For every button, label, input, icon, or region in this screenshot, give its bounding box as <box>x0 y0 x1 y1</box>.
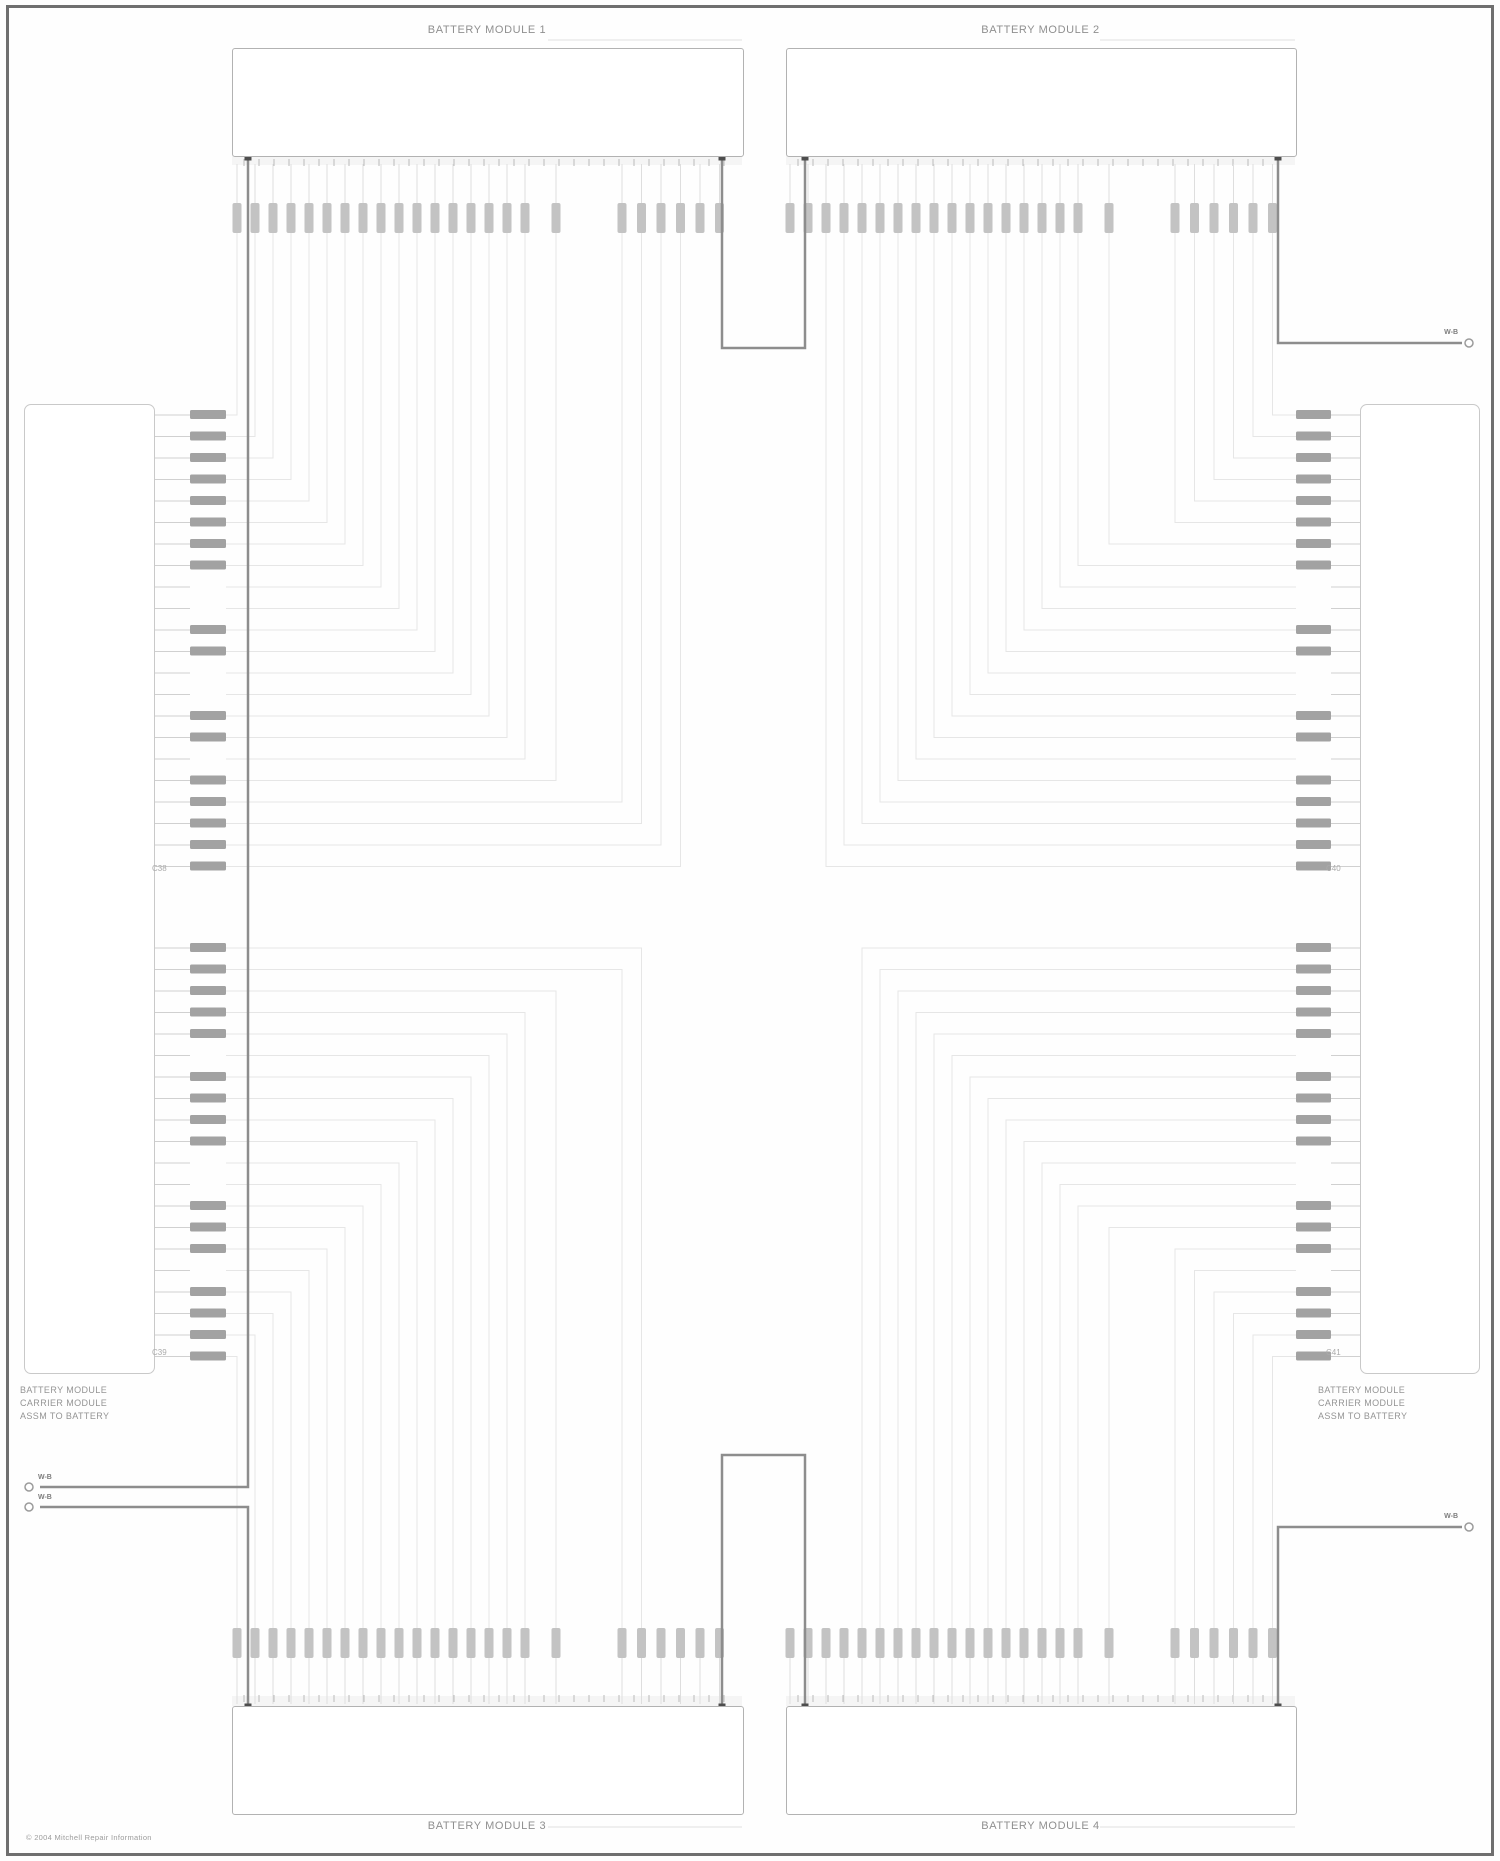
battery-module-box-2 <box>786 48 1297 157</box>
module-label-top-left: BATTERY MODULE 1 <box>232 24 742 36</box>
right-connector-line1: BATTERY MODULE <box>1318 1384 1407 1397</box>
battery-module-box-3 <box>232 1706 744 1815</box>
wiring-diagram-page: 1234567891011121314151617181920212223242… <box>0 0 1500 1861</box>
wire-color-label-top-right: W-B <box>1418 329 1458 336</box>
sense-wires-top-left <box>226 233 681 867</box>
right-connector-line3: ASSM TO BATTERY <box>1318 1410 1407 1423</box>
connector-id-right-lower: C41 <box>1326 1348 1341 1357</box>
module-terminals-bottom-right <box>786 1628 1296 1706</box>
power-bus-links <box>25 154 1473 1711</box>
footer-copyright: © 2004 Mitchell Repair Information <box>26 1833 152 1842</box>
battery-module-box-4 <box>786 1706 1297 1815</box>
wire-color-label-bottom-right: W-B <box>1418 1513 1458 1520</box>
left-connector-box <box>24 404 155 1374</box>
right-connector-box <box>1360 404 1480 1374</box>
sense-wires-top-right <box>826 233 1296 867</box>
left-connector-line3: ASSM TO BATTERY <box>20 1410 109 1423</box>
sense-wires-bottom-left <box>226 948 642 1628</box>
module-terminals-top-right <box>786 155 1296 233</box>
module-label-bottom-right: BATTERY MODULE 4 <box>786 1820 1295 1832</box>
sense-wires-bottom-right <box>862 948 1296 1628</box>
wiring-svg: 1234567891011121314151617181920212223242… <box>0 0 1500 1861</box>
right-connector-line2: CARRIER MODULE <box>1318 1397 1407 1410</box>
left-connector-line1: BATTERY MODULE <box>20 1384 109 1397</box>
module-label-top-right: BATTERY MODULE 2 <box>786 24 1295 36</box>
wire-color-label-bus-2: W-B <box>38 1494 52 1501</box>
left-connector-description: BATTERY MODULE CARRIER MODULE ASSM TO BA… <box>20 1384 109 1423</box>
connector-id-right-upper: C40 <box>1326 864 1341 873</box>
module-label-bottom-left: BATTERY MODULE 3 <box>232 1820 742 1832</box>
right-connector-description: BATTERY MODULE CARRIER MODULE ASSM TO BA… <box>1318 1384 1407 1423</box>
module-terminals-bottom-left <box>232 1628 742 1706</box>
connector-id-left-lower: C39 <box>152 1348 167 1357</box>
wire-color-label-bus-1: W-B <box>38 1474 52 1481</box>
battery-module-box-1 <box>232 48 744 157</box>
label-leader-lines <box>548 40 1295 1827</box>
left-connector-line2: CARRIER MODULE <box>20 1397 109 1410</box>
module-terminals-top-left <box>232 155 742 233</box>
connector-id-left-upper: C38 <box>152 864 167 873</box>
